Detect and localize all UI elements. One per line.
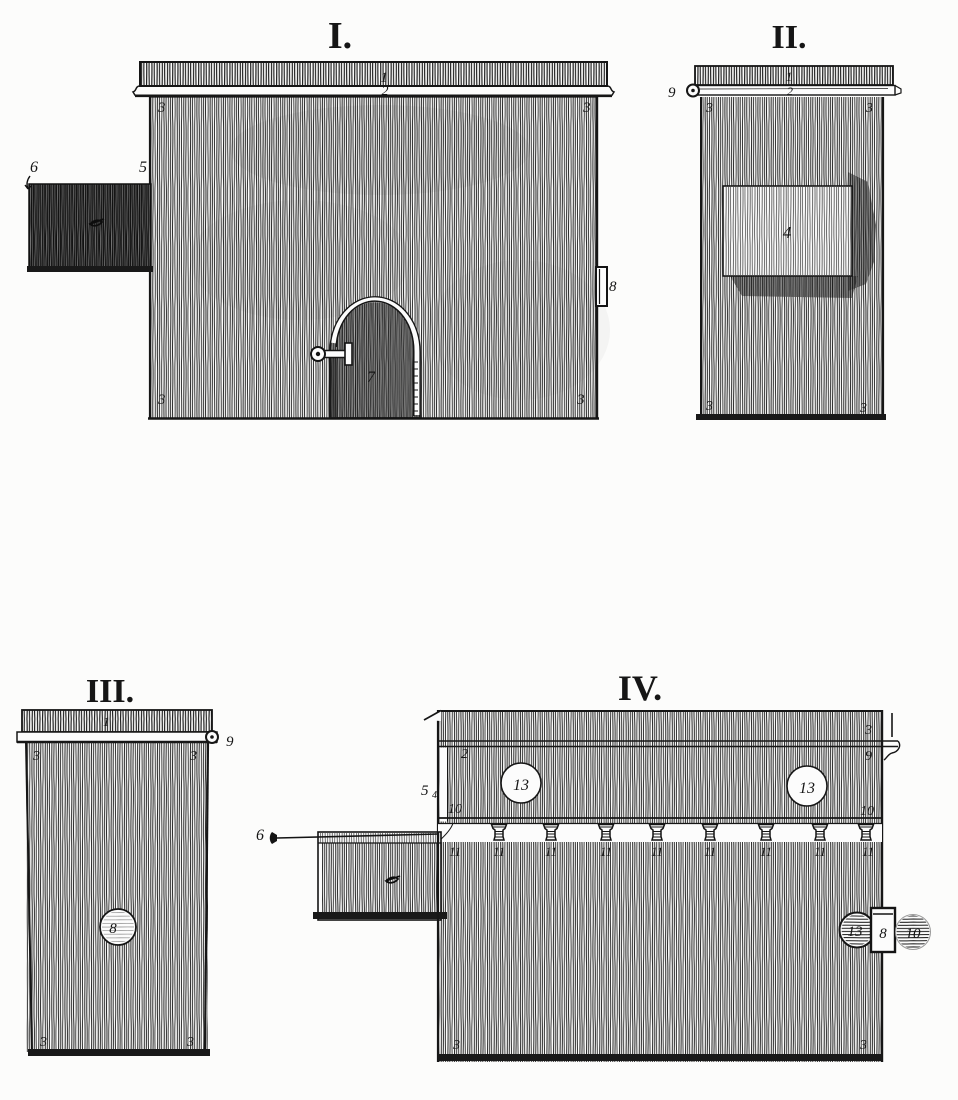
svg-text:1: 1 [786, 69, 793, 84]
svg-text:3: 3 [864, 723, 872, 738]
svg-text:3: 3 [576, 392, 585, 408]
svg-text:10: 10 [860, 804, 874, 819]
svg-text:2: 2 [461, 747, 468, 762]
svg-text:9: 9 [226, 734, 234, 750]
svg-text:8: 8 [879, 926, 887, 942]
svg-text:6: 6 [256, 827, 264, 844]
svg-text:9: 9 [865, 749, 872, 764]
svg-text:11: 11 [760, 844, 772, 859]
svg-text:11: 11 [704, 844, 716, 859]
svg-text:3: 3 [452, 1038, 460, 1053]
svg-text:11: 11 [651, 844, 663, 859]
svg-text:6: 6 [30, 159, 38, 176]
svg-text:3: 3 [32, 749, 40, 764]
svg-text:11: 11 [862, 844, 874, 859]
svg-text:III.: III. [86, 673, 134, 710]
svg-text:13: 13 [848, 924, 863, 940]
svg-text:11: 11 [545, 844, 557, 859]
svg-text:3: 3 [859, 401, 867, 416]
svg-text:8: 8 [609, 279, 617, 295]
svg-text:13: 13 [513, 777, 529, 794]
svg-text:3: 3 [189, 749, 197, 764]
svg-text:11: 11 [814, 844, 826, 859]
svg-text:5: 5 [421, 783, 429, 799]
svg-text:9: 9 [668, 85, 676, 101]
svg-text:4: 4 [783, 223, 792, 242]
svg-text:3: 3 [157, 392, 166, 408]
svg-text:II.: II. [772, 19, 807, 56]
svg-text:3: 3 [859, 1038, 867, 1053]
svg-text:3: 3 [157, 100, 166, 116]
svg-text:2: 2 [787, 84, 793, 98]
svg-text:3: 3 [865, 101, 873, 116]
svg-text:3: 3 [705, 101, 713, 116]
svg-text:5: 5 [139, 159, 147, 176]
svg-text:8: 8 [109, 921, 117, 937]
svg-text:I.: I. [328, 15, 352, 57]
svg-text:13: 13 [799, 780, 815, 797]
svg-text:10: 10 [448, 802, 462, 817]
svg-text:3: 3 [582, 100, 591, 116]
svg-text:7: 7 [367, 369, 376, 386]
svg-text:11: 11 [600, 844, 612, 859]
svg-text:3: 3 [705, 399, 713, 414]
svg-text:3: 3 [39, 1035, 47, 1050]
svg-text:4: 4 [432, 790, 437, 801]
svg-text:3: 3 [186, 1035, 194, 1050]
svg-text:IV.: IV. [618, 668, 662, 708]
svg-text:11: 11 [449, 844, 461, 859]
svg-text:10: 10 [906, 926, 922, 942]
svg-text:11: 11 [493, 844, 505, 859]
svg-text:1: 1 [103, 714, 110, 729]
